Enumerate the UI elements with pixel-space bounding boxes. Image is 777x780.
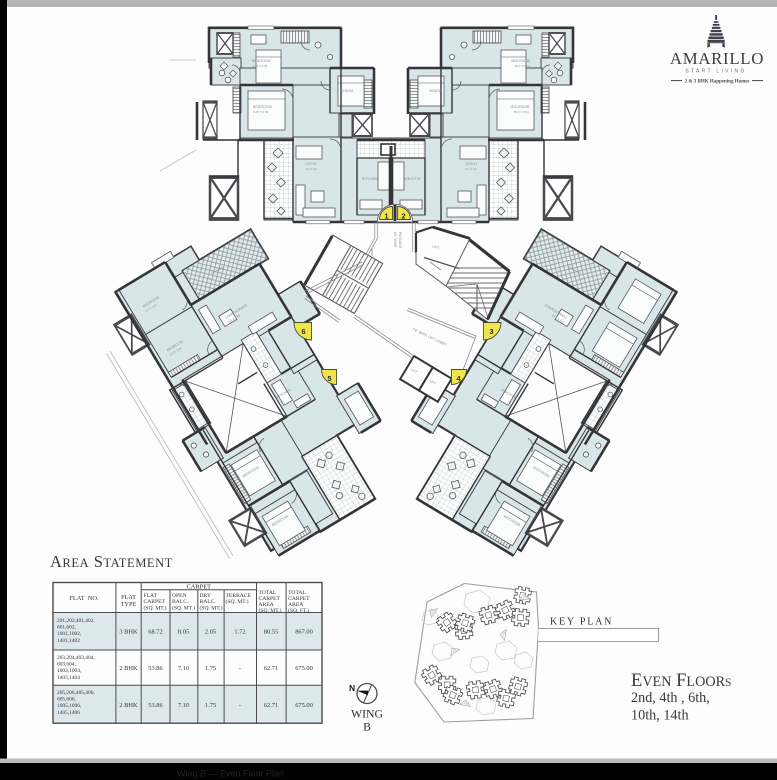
svg-text:2nd, 4th , 6th,: 2nd, 4th , 6th, [631, 690, 710, 706]
svg-text:6: 6 [301, 327, 305, 336]
svg-text:867.00: 867.00 [295, 629, 313, 636]
svg-text:-: - [239, 702, 241, 709]
svg-text:2: 2 [401, 212, 405, 221]
svg-text:53.86: 53.86 [148, 702, 162, 709]
svg-text:62.71: 62.71 [264, 702, 278, 709]
svg-text:1.75: 1.75 [205, 702, 216, 709]
svg-text:2 & 3 BHK Happening Homes: 2 & 3 BHK Happening Homes [685, 80, 750, 85]
svg-text:START LIVING: START LIVING [685, 69, 746, 75]
svg-text:8.05: 8.05 [178, 629, 189, 636]
svg-text:10th, 14th: 10th, 14th [631, 708, 689, 724]
svg-text:1.75: 1.75 [205, 665, 216, 672]
svg-text:-: - [239, 665, 241, 672]
svg-text:80.55: 80.55 [264, 629, 278, 636]
svg-text:7.10: 7.10 [178, 665, 189, 672]
svg-text:TERRACE(SQ. MT.): TERRACE(SQ. MT.) [226, 593, 252, 605]
svg-text:KEY PLAN: KEY PLAN [550, 617, 613, 628]
svg-text:3: 3 [489, 327, 493, 336]
svg-text:N: N [349, 683, 355, 693]
svg-text:53.86: 53.86 [148, 665, 162, 672]
svg-text:Wing B — Even Floor Plan: Wing B — Even Floor Plan [177, 769, 284, 779]
svg-text:675.00: 675.00 [295, 665, 313, 672]
svg-text:2 BHK: 2 BHK [119, 665, 138, 672]
svg-text:675.00: 675.00 [295, 702, 313, 709]
svg-text:1.72: 1.72 [234, 629, 245, 636]
svg-text:7.10: 7.10 [178, 702, 189, 709]
svg-text:CARPET: CARPET [187, 583, 212, 590]
svg-text:68.72: 68.72 [148, 629, 162, 636]
svg-text:FLAT NO.: FLAT NO. [69, 595, 99, 602]
svg-text:PASSAGE: PASSAGE [398, 232, 402, 249]
svg-text:B: B [363, 720, 371, 734]
svg-text:WING: WING [351, 707, 384, 721]
svg-text:EVEN FLOORS: EVEN FLOORS [631, 671, 731, 691]
svg-text:6'6" WIDE: 6'6" WIDE [393, 232, 397, 248]
svg-text:3 BHK: 3 BHK [119, 629, 138, 636]
svg-text:AMARILLO: AMARILLO [670, 49, 764, 68]
svg-text:2 BHK: 2 BHK [119, 702, 138, 709]
svg-text:62.71: 62.71 [264, 665, 278, 672]
svg-text:FLATTYPE: FLATTYPE [121, 594, 137, 608]
svg-text:2.05: 2.05 [205, 629, 216, 636]
